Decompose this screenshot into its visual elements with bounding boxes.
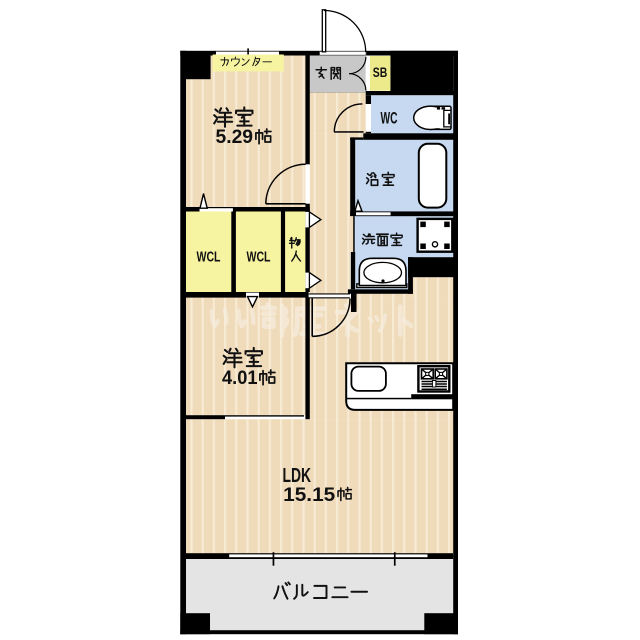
svg-text:WCL: WCL (197, 250, 221, 266)
svg-text:5.29: 5.29 (216, 126, 254, 148)
svg-text:WCL: WCL (247, 250, 271, 266)
svg-text:4.01: 4.01 (222, 367, 258, 389)
svg-text:SB: SB (373, 65, 388, 80)
svg-text:15.15: 15.15 (283, 484, 335, 506)
svg-text:WC: WC (381, 110, 398, 128)
